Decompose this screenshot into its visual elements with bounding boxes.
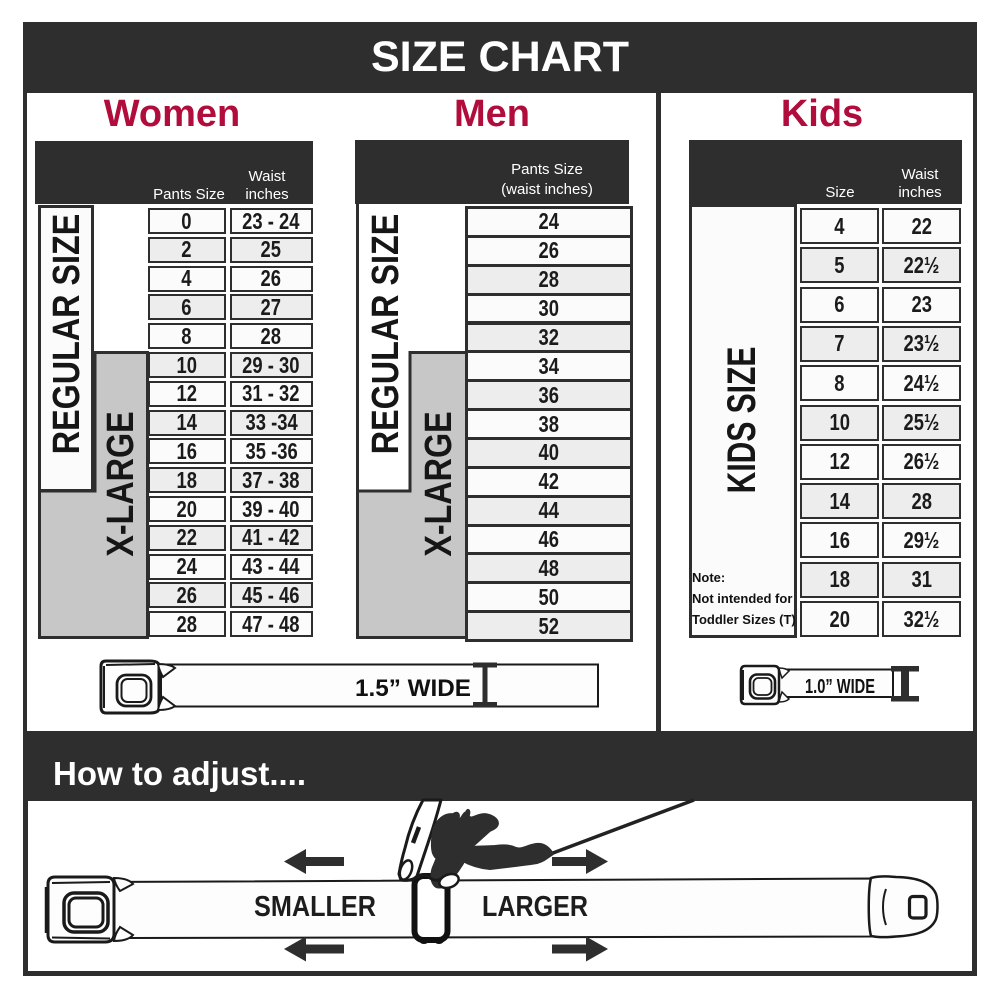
svg-text:1.0” WIDE: 1.0” WIDE — [805, 676, 875, 698]
svg-text:1.5” WIDE: 1.5” WIDE — [355, 675, 471, 702]
svg-text:SMALLER: SMALLER — [254, 891, 376, 923]
svg-text:LARGER: LARGER — [482, 891, 588, 923]
